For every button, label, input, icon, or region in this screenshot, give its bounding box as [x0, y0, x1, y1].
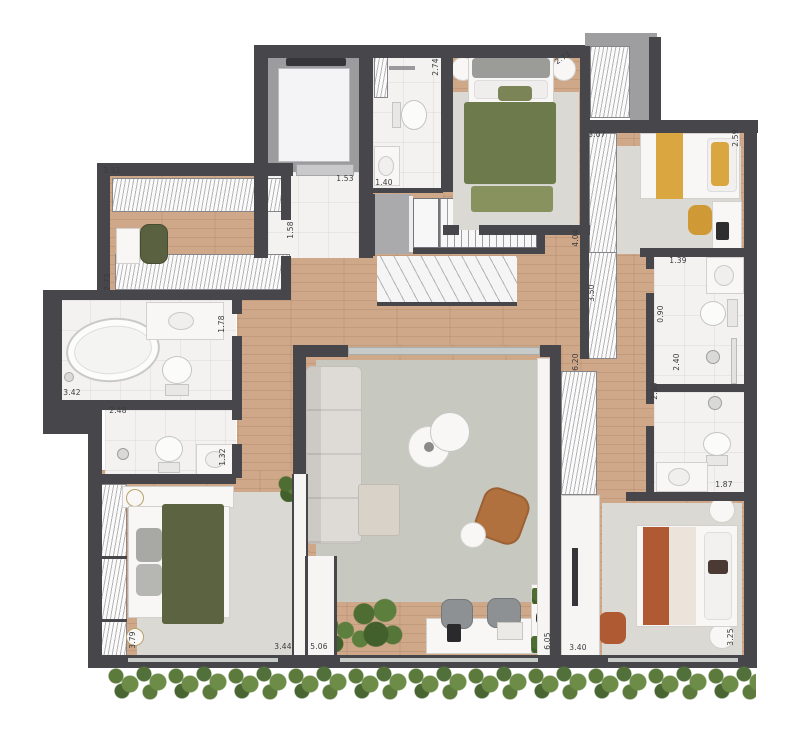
wall — [640, 248, 746, 257]
dimension-label: 4.04 — [572, 229, 580, 247]
dimension-label: 2.48 — [109, 407, 127, 415]
wardrobe-niche — [590, 46, 630, 118]
wardrobe-divider — [100, 619, 127, 622]
glass-door — [340, 658, 538, 662]
desk-pad — [497, 622, 523, 640]
glass-door — [608, 658, 738, 662]
wall — [646, 426, 654, 494]
wall — [281, 176, 291, 220]
wall — [646, 257, 654, 269]
duvet-green — [464, 102, 556, 184]
side-table — [460, 522, 486, 548]
desk-chair — [688, 205, 712, 235]
shower-head — [706, 350, 720, 364]
cushion-yellow — [711, 142, 729, 186]
dimension-label: 6.05 — [544, 632, 552, 650]
wardrobe-corridor-upper — [586, 252, 617, 359]
bed-bench — [471, 186, 553, 212]
wall-tap — [64, 372, 74, 382]
dimension-label: 1.39 — [669, 257, 687, 265]
tv-panel — [572, 548, 578, 606]
ottoman — [358, 484, 400, 536]
wall — [443, 225, 459, 235]
sink-basin — [668, 468, 690, 486]
wardrobe-bedroom2 — [589, 133, 617, 257]
sink-basin — [378, 156, 394, 176]
dimension-label: 2.73 — [104, 273, 112, 291]
dimension-label: 2.30 — [651, 382, 659, 400]
towel-bar — [389, 66, 415, 70]
wardrobe-divider — [100, 556, 127, 559]
desk — [116, 228, 140, 264]
shower-head — [117, 448, 129, 460]
coffee-table — [430, 412, 470, 452]
wall — [359, 45, 373, 258]
partition-white — [537, 358, 550, 657]
dimension-label: 1.78 — [218, 315, 226, 333]
wall — [62, 290, 291, 300]
dimension-label: 2.74 — [432, 58, 440, 76]
throw-terracotta — [643, 527, 669, 625]
wall — [97, 163, 293, 176]
wall — [43, 410, 88, 434]
shower-head — [708, 396, 722, 410]
stairs-lower-flight — [377, 256, 517, 302]
dimension-label: 1.87 — [715, 481, 733, 489]
dimension-label: 2.40 — [673, 353, 681, 371]
toilet — [700, 301, 726, 326]
wall — [254, 45, 268, 258]
dimension-label: 3.25 — [727, 628, 735, 646]
stair-edge — [377, 302, 517, 306]
laptop — [447, 624, 461, 642]
dimension-label: 3.07 — [588, 131, 606, 139]
toilet — [401, 100, 427, 130]
toilet-tank — [165, 384, 189, 396]
wall — [649, 37, 661, 121]
dimension-label: 3.51 — [103, 167, 121, 175]
cushion-dark — [708, 560, 728, 574]
dimension-label: 2.59 — [732, 129, 740, 147]
wall — [43, 290, 62, 414]
pillow — [136, 528, 162, 562]
wall — [232, 300, 242, 314]
hedge — [108, 664, 756, 708]
wardrobe-bedroom3 — [100, 484, 127, 658]
dimension-label: 6.20 — [572, 353, 580, 371]
throw-yellow — [656, 133, 683, 199]
sink-basin — [168, 312, 194, 330]
table-decor — [424, 442, 434, 452]
shower-niche — [375, 194, 411, 254]
wall — [441, 52, 453, 192]
duvet-olive — [162, 504, 224, 624]
pillow — [472, 58, 550, 78]
wall — [540, 345, 552, 357]
floor-plan: 3.51 2.73 1.53 1.40 1.58 2.74 2.71 3.07 … — [0, 0, 800, 739]
toilet-tank — [727, 299, 738, 327]
glass-door — [128, 658, 278, 662]
dimension-label: 3.40 — [569, 644, 587, 652]
toilet-tank — [392, 102, 401, 128]
dimension-label: 1.32 — [219, 448, 227, 466]
pillow — [704, 532, 732, 620]
wall — [88, 410, 102, 668]
stair-divider — [413, 248, 537, 254]
dimension-label: 3.42 — [63, 389, 81, 397]
bath-cabinet — [374, 56, 388, 98]
toilet — [155, 436, 183, 462]
stool — [126, 489, 144, 507]
wall — [580, 133, 589, 359]
glass-partition — [348, 347, 540, 355]
wall — [232, 444, 242, 478]
toilet-tank — [158, 462, 180, 473]
wall — [646, 293, 654, 385]
wardrobe-corridor-lower — [561, 371, 597, 495]
shower-glass — [731, 338, 737, 384]
bed-bench — [599, 612, 626, 644]
dimension-label: 3.44 — [274, 643, 292, 651]
dimension-label: 1.40 — [375, 179, 393, 187]
wall — [373, 188, 443, 193]
dimension-label: 1.53 — [336, 175, 354, 183]
toilet — [703, 432, 731, 456]
cushion — [498, 86, 532, 101]
toilet-tank — [706, 455, 728, 466]
sofa — [306, 366, 362, 544]
sink-basin — [714, 265, 734, 286]
elevator-door — [286, 58, 346, 66]
desk-chair — [140, 224, 168, 264]
dimension-label: 3.50 — [588, 284, 596, 302]
dimension-label: 1.58 — [287, 221, 295, 239]
toilet — [162, 356, 192, 384]
dimension-label: 3.79 — [129, 631, 137, 649]
dimension-label: 5.06 — [310, 643, 328, 651]
wall — [232, 336, 242, 420]
laptop — [716, 222, 729, 240]
wall — [43, 400, 236, 410]
wall — [88, 474, 236, 484]
wall — [550, 345, 561, 657]
stair-landing — [413, 198, 439, 248]
pillow — [136, 564, 162, 596]
wall — [626, 492, 746, 501]
throw-striped — [669, 527, 696, 625]
wall — [646, 384, 746, 392]
suite-closet-wall — [561, 495, 600, 657]
dimension-label: 0.90 — [657, 305, 665, 323]
elevator-cab — [278, 68, 350, 162]
